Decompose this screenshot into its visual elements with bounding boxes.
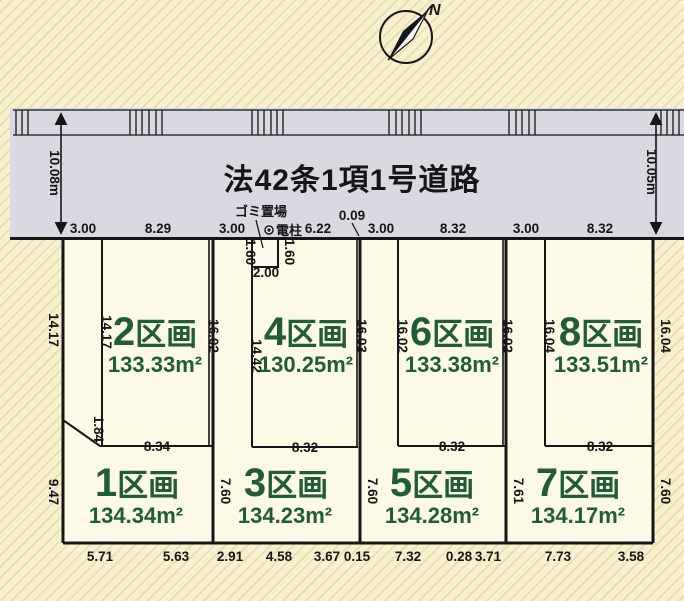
tspan-shape: 区画 — [432, 317, 494, 352]
plot-3-area: 134.23m² — [238, 503, 332, 528]
tspan-shape: 7 — [536, 461, 558, 505]
dim-label: 0.28 — [446, 549, 473, 564]
dim-label: 5.71 — [87, 549, 114, 564]
road-name: 法42条1項1号道路 — [224, 164, 481, 197]
dim-label: 8.29 — [145, 221, 171, 236]
plot-6-title: 6区画 — [410, 310, 494, 354]
tspan-shape: 区画 — [266, 468, 328, 503]
dim-label: 16.04 — [542, 319, 557, 353]
dim-label: 3.67 — [314, 549, 340, 564]
dim-label: 8.32 — [587, 439, 613, 454]
plot-2-area: 133.33m² — [108, 352, 202, 377]
dim-label: 3.00 — [70, 221, 96, 236]
dim-label: 2.91 — [217, 549, 244, 564]
tspan-shape: 区画 — [412, 468, 474, 503]
tspan-shape: 5 — [390, 461, 412, 505]
dim-label: 0.15 — [344, 549, 371, 564]
plot-1-title: 1区画 — [95, 461, 179, 505]
tspan-shape: 8 — [559, 310, 581, 354]
plot-4-title: 4区画 — [264, 310, 348, 354]
dim-label: 8.34 — [144, 439, 171, 454]
dim-label: 0.09 — [339, 208, 365, 223]
dim-label: 16.02 — [395, 319, 410, 353]
dim-label: 14.17 — [99, 315, 114, 349]
garbage-dim-left: 1.60 — [243, 239, 258, 265]
dim-label: 8.32 — [440, 221, 466, 236]
dim-label: 3.00 — [513, 221, 539, 236]
dim-label: 16.04 — [658, 319, 673, 353]
plot-7-title: 7区画 — [536, 461, 620, 505]
tspan-shape: 区画 — [558, 468, 620, 503]
tspan-shape: 2 — [113, 310, 135, 354]
dim-label: 8.32 — [292, 440, 318, 455]
tspan-shape: 4 — [264, 310, 287, 354]
plot-5-title: 5区画 — [390, 461, 474, 505]
dim-label: 3.00 — [368, 221, 394, 236]
dim-label: 4.58 — [266, 549, 293, 564]
dim-label: 16.02 — [206, 319, 221, 353]
plot-7-area: 134.17m² — [531, 503, 625, 528]
dim-label: 7.60 — [658, 478, 673, 504]
plot-4-area: 130.25m² — [259, 352, 353, 377]
garbage-dim-right: 1.60 — [282, 239, 297, 265]
dim-label: 3.58 — [618, 549, 645, 564]
dim-label: 3.71 — [475, 549, 502, 564]
dim-label: 7.32 — [395, 549, 421, 564]
road-width-left: 10.08m — [47, 150, 62, 196]
dim-label: 8.32 — [587, 221, 613, 236]
dim-label: 7.61 — [511, 478, 526, 505]
tspan-shape: 区画 — [135, 317, 197, 352]
tspan-shape: 区画 — [581, 317, 643, 352]
land-subdivision-map: N 法42条1項1号道路 10.08m 10.05m ゴミ置場 電柱 1.60 … — [0, 0, 684, 601]
dim-label: 6.22 — [305, 221, 331, 236]
road-width-right: 10.05m — [644, 149, 659, 195]
plot-8-area: 133.51m² — [554, 352, 648, 377]
polygon-shape — [388, 10, 428, 60]
north-compass-icon: N — [380, 2, 441, 63]
tspan-shape: 3 — [244, 461, 266, 505]
tspan-shape: 1 — [95, 461, 117, 505]
dim-label: 3.00 — [219, 221, 245, 236]
tspan-shape: 区画 — [286, 317, 348, 352]
garbage-label: ゴミ置場 — [235, 204, 287, 219]
bottom-dimension-labels: 5.71 5.63 2.91 4.58 3.67 0.15 7.32 0.28 … — [87, 549, 645, 564]
dim-label: 7.60 — [365, 478, 380, 504]
tspan-shape: 6 — [410, 310, 432, 354]
plot-8-title: 8区画 — [559, 310, 643, 354]
plot-2-title: 2区画 — [113, 310, 197, 354]
circle-shape — [267, 228, 270, 231]
utility-pole-label: 電柱 — [276, 223, 302, 238]
tspan-shape: 区画 — [117, 468, 179, 503]
utility-pole-icon — [265, 226, 273, 234]
dim-label: 1.84 — [91, 416, 106, 443]
dim-label: 9.47 — [46, 479, 61, 505]
dim-label: 16.02 — [500, 319, 515, 353]
dim-label: 5.63 — [163, 549, 190, 564]
plot-3-title: 3区画 — [244, 461, 328, 505]
garbage-dim-width: 2.00 — [253, 265, 279, 280]
dim-label: 7.73 — [545, 549, 572, 564]
plot-6-area: 133.38m² — [405, 352, 499, 377]
dim-label: 8.32 — [439, 439, 465, 454]
dim-label: 16.03 — [354, 319, 369, 353]
dim-label: 7.60 — [218, 478, 233, 504]
plot-diagram-canvas: N 法42条1項1号道路 10.08m 10.05m ゴミ置場 電柱 1.60 … — [0, 0, 684, 601]
plot-1-area: 134.34m² — [89, 503, 183, 528]
dim-label: 14.17 — [46, 313, 61, 347]
plot-5-area: 134.28m² — [385, 503, 479, 528]
north-label: N — [429, 2, 441, 19]
